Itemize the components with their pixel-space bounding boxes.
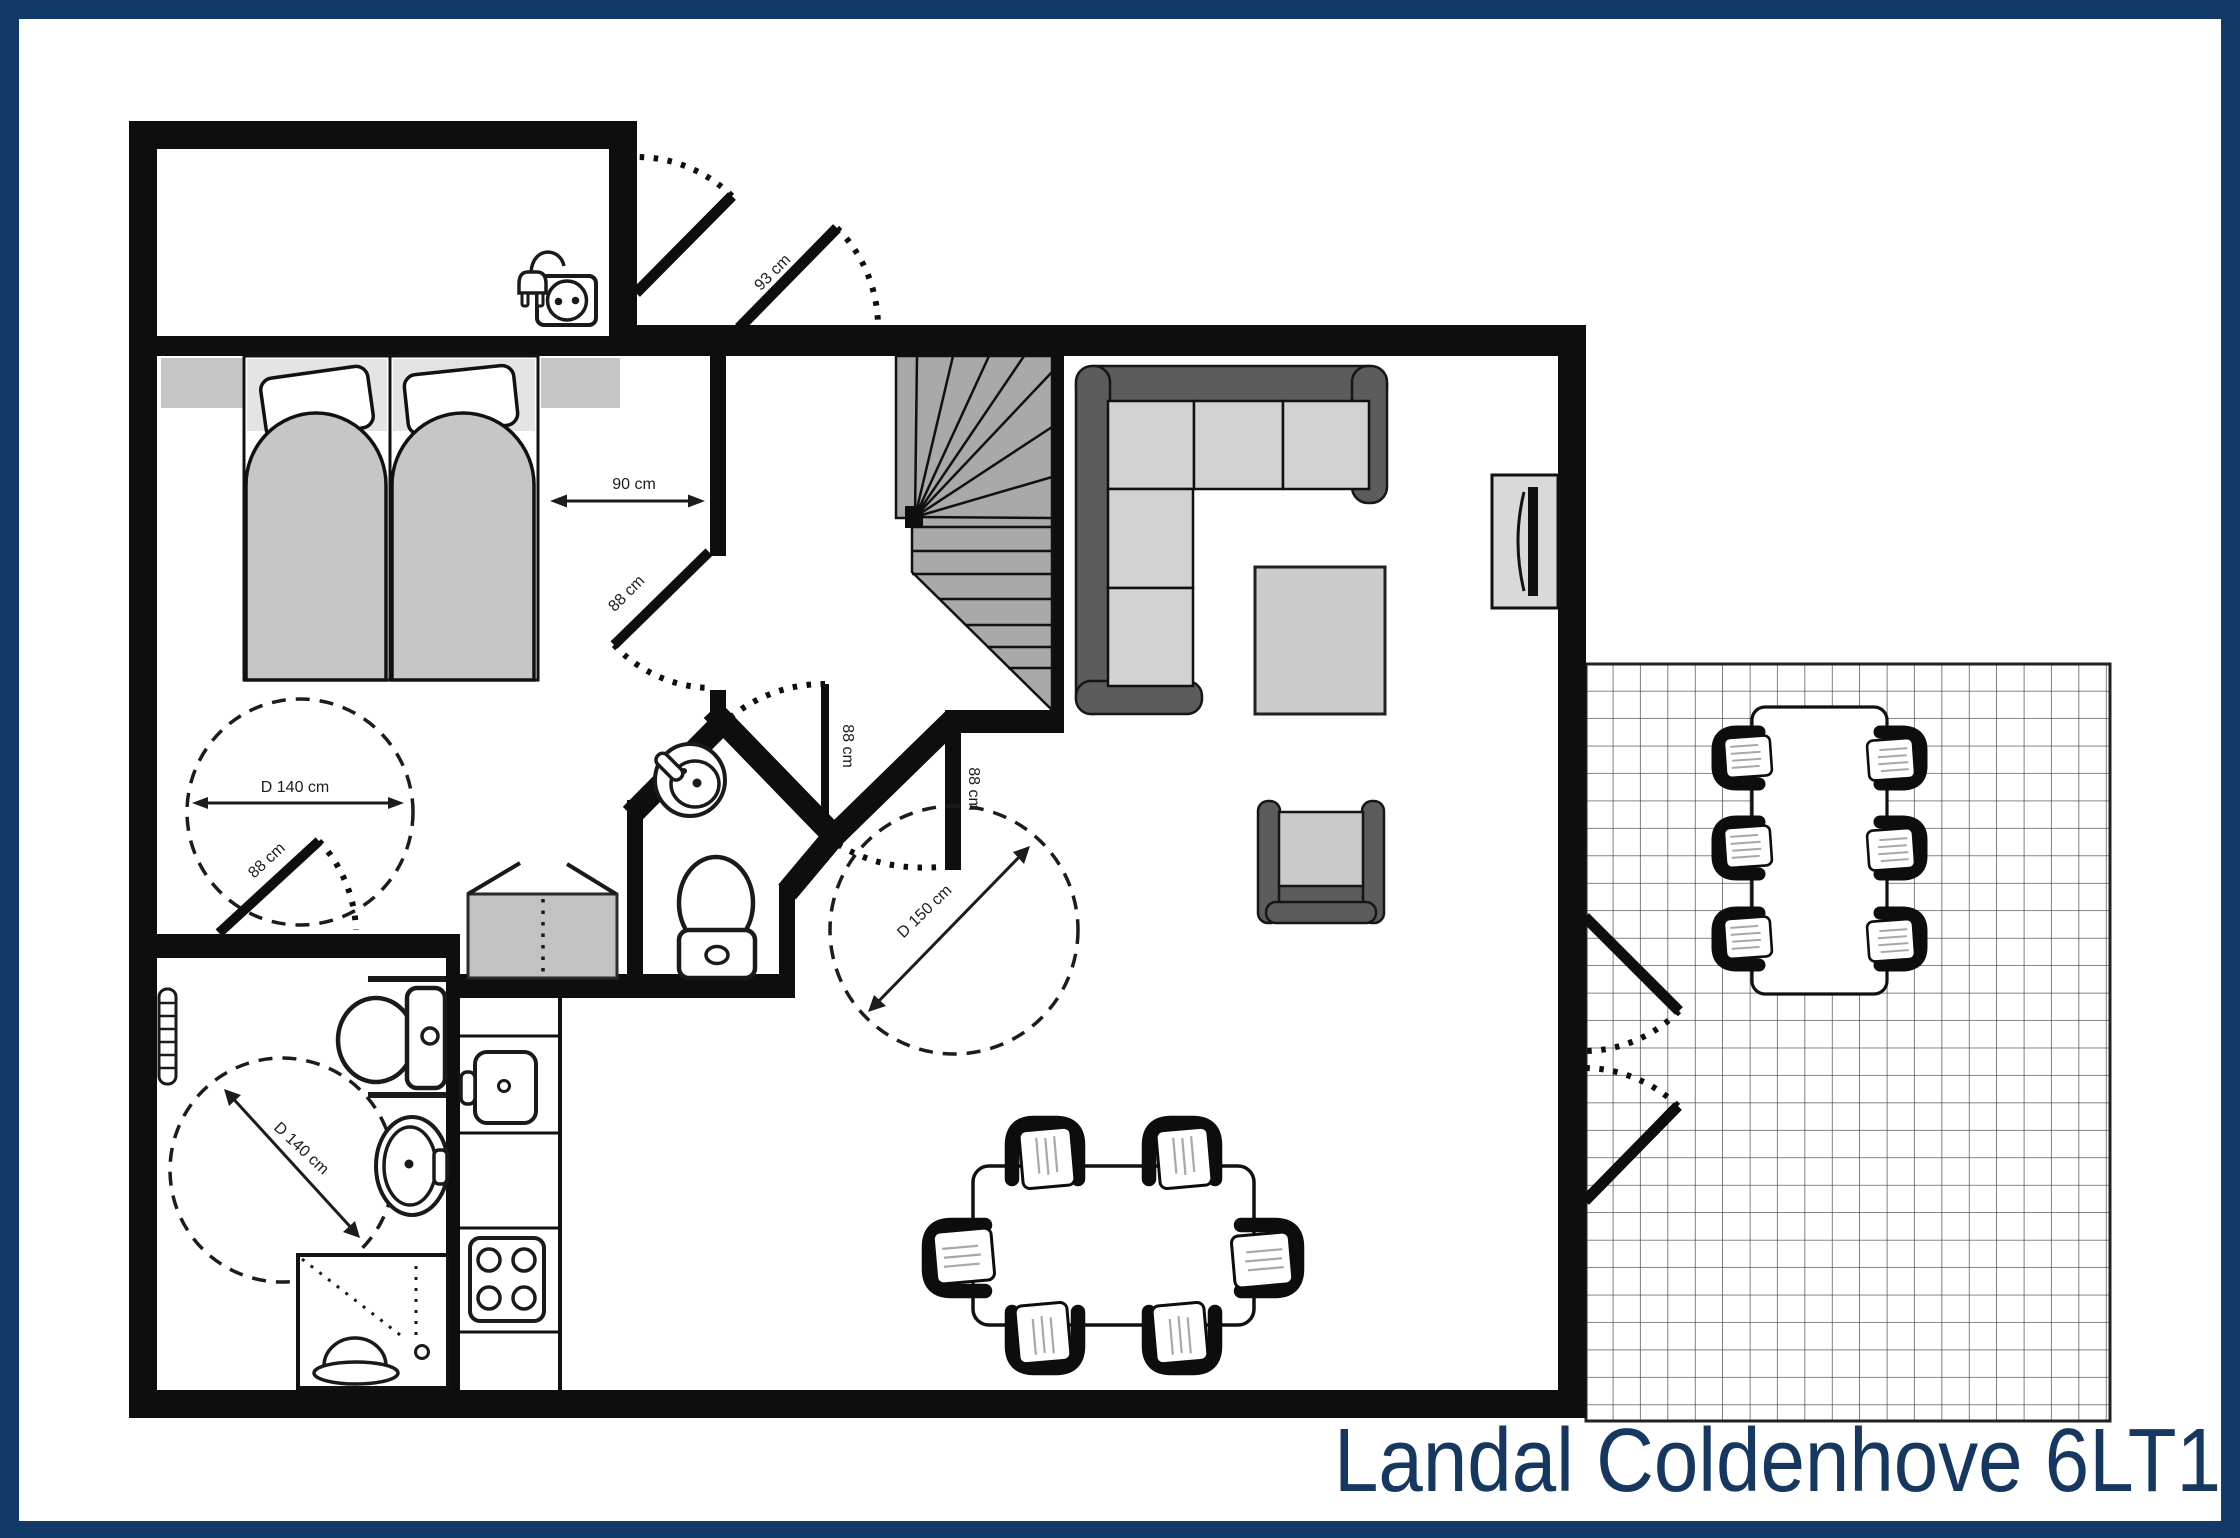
svg-text:90 cm: 90 cm (612, 476, 656, 493)
svg-text:Landal Coldenhove 6LT1: Landal Coldenhove 6LT1 (1334, 1411, 2221, 1511)
svg-text:88 cm: 88 cm (965, 767, 982, 811)
svg-text:88 cm: 88 cm (839, 724, 856, 768)
svg-text:D 140 cm: D 140 cm (261, 779, 329, 796)
